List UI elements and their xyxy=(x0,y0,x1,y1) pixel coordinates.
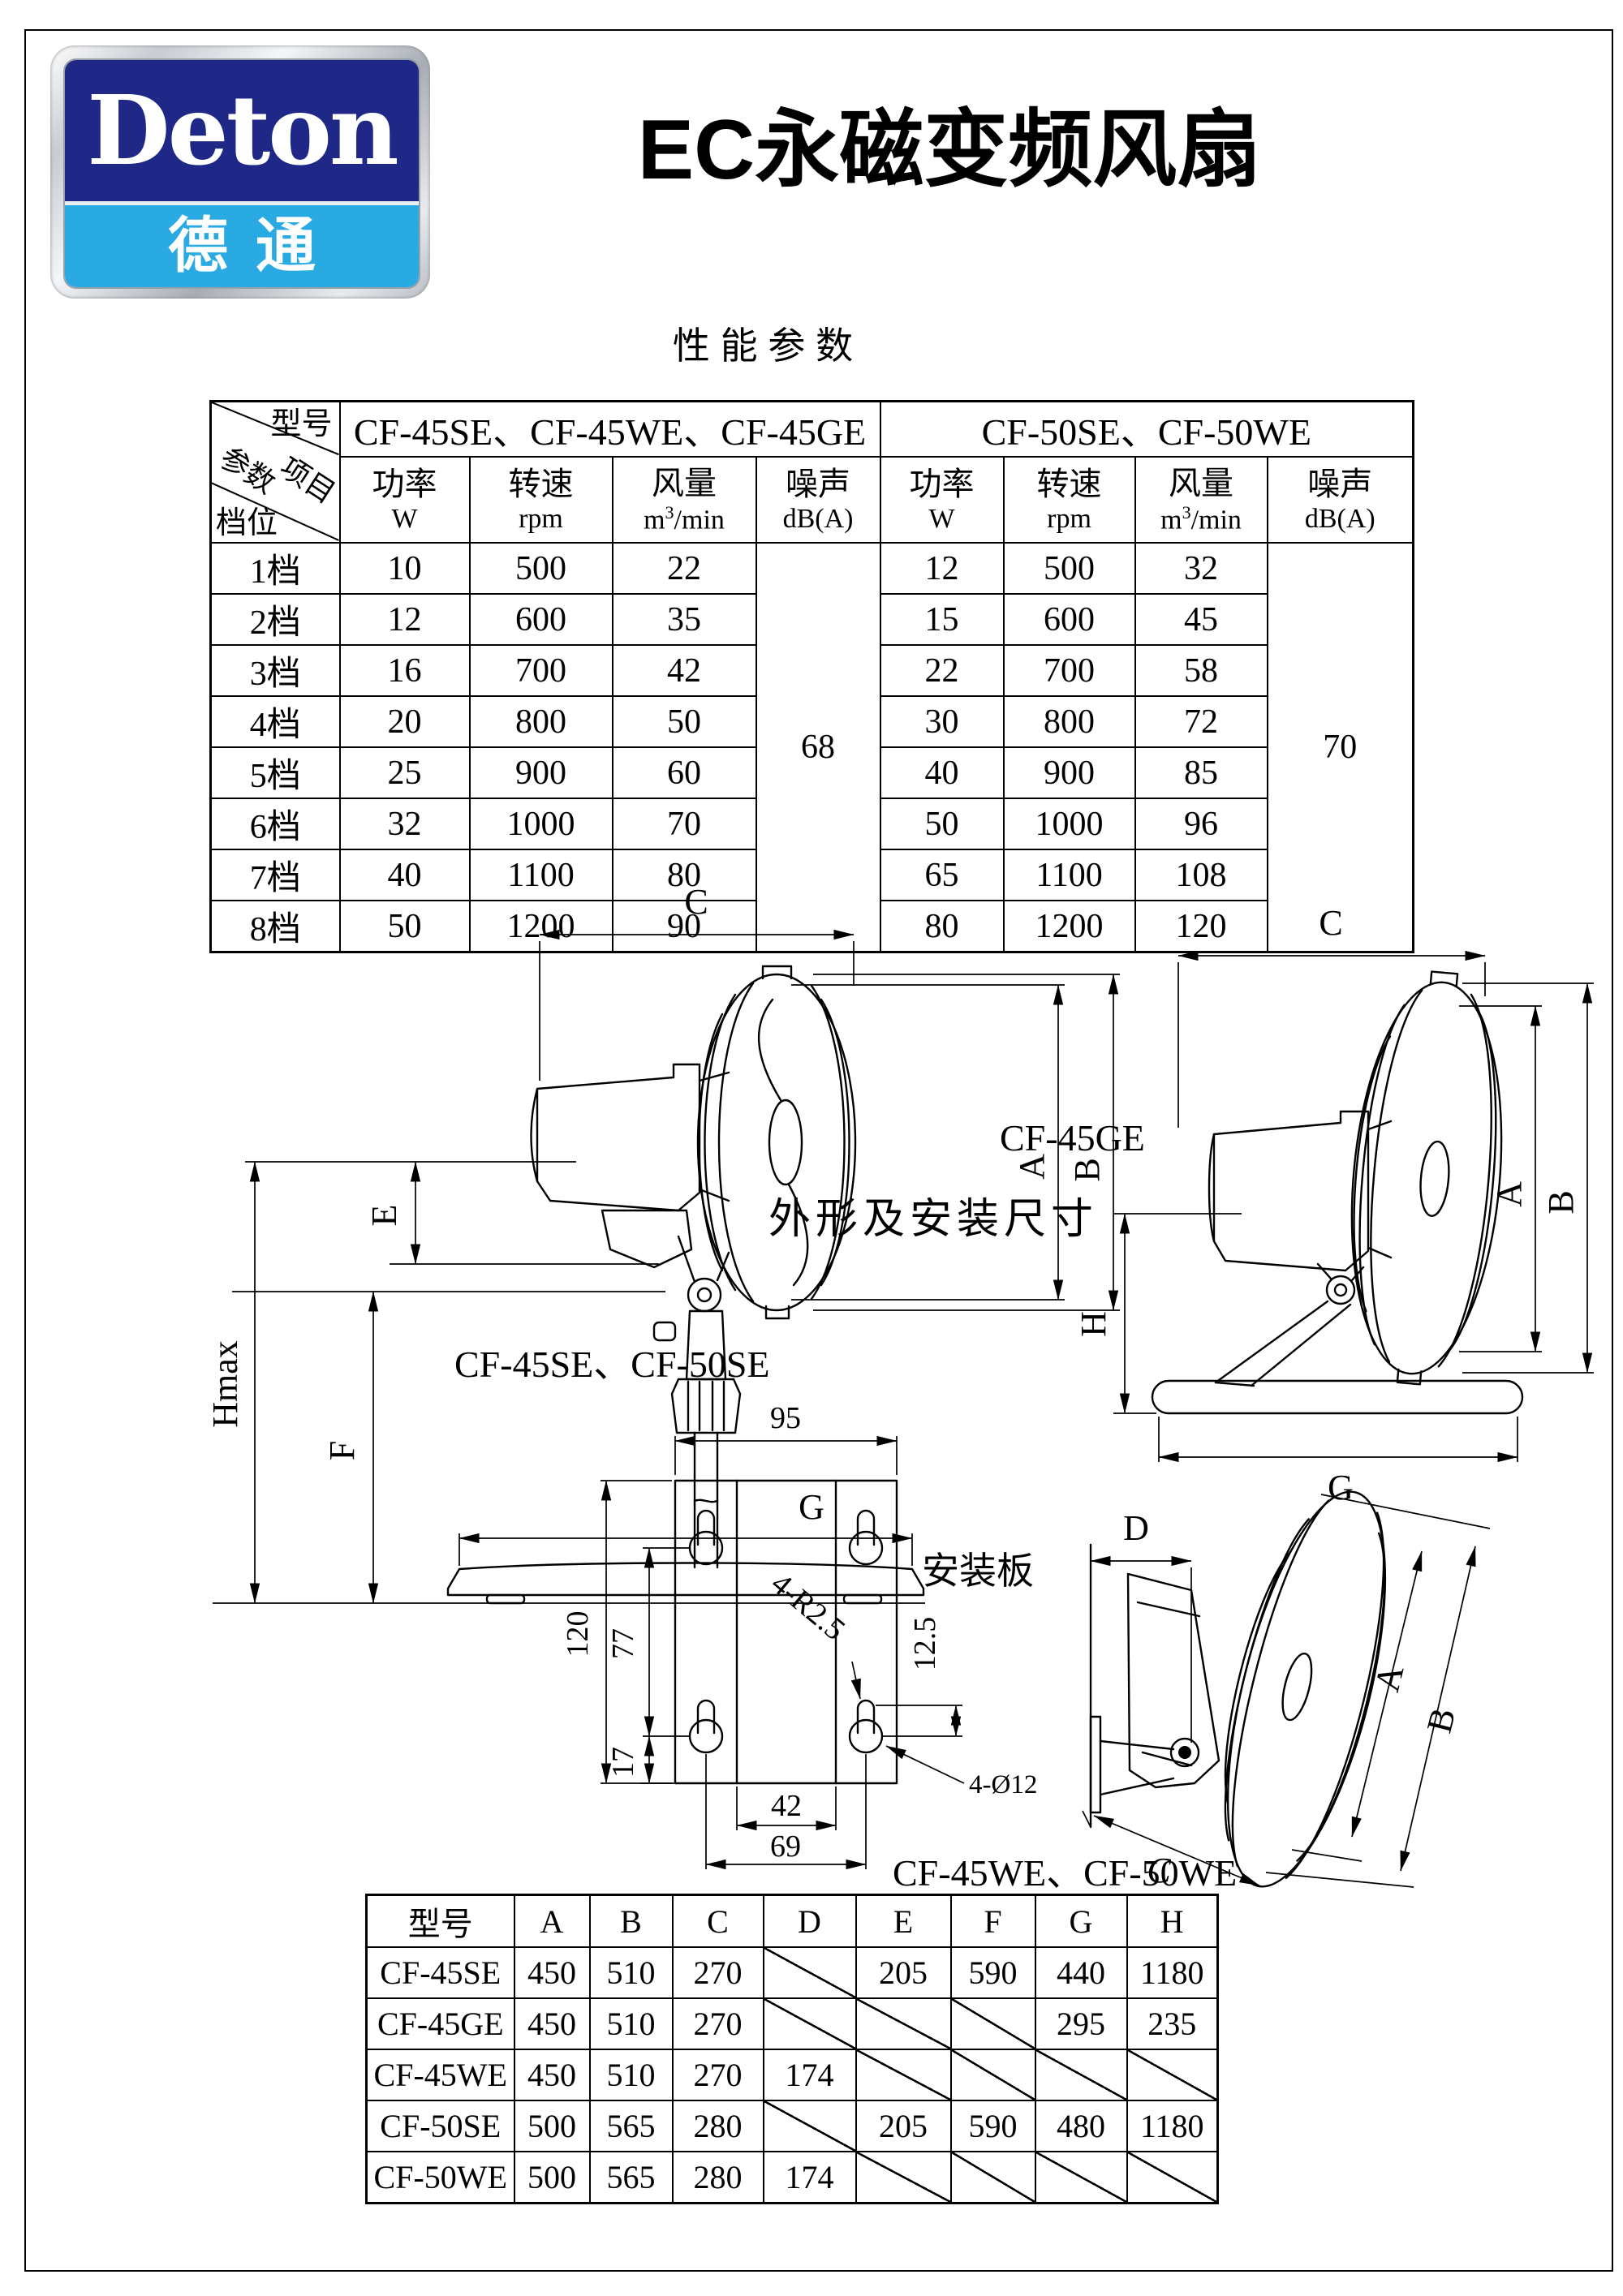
value-cell: 565 xyxy=(590,2100,673,2152)
value-cell: 480 xyxy=(1035,2100,1127,2152)
dim-label-c: C xyxy=(684,882,708,922)
empty-cell xyxy=(856,2049,951,2100)
dim-label-b: B xyxy=(1067,1158,1107,1181)
value-cell: 1000 xyxy=(1004,798,1135,849)
col-header-speed-45: 转速 rpm xyxy=(470,457,613,543)
empty-cell xyxy=(764,2100,856,2152)
deton-logo: Deton 德通 xyxy=(50,45,430,299)
page-title: EC永磁变频风扇 xyxy=(584,104,1315,196)
empty-cell xyxy=(764,1947,856,1998)
corner-label-model: 型号 xyxy=(270,409,332,440)
note-corner-radius: 4-R2.5 xyxy=(764,1567,851,1647)
empty-cell xyxy=(1127,2049,1218,2100)
value-cell: 500 xyxy=(1004,543,1135,594)
value-cell: 1180 xyxy=(1127,1947,1218,1998)
value-cell: 85 xyxy=(1135,747,1268,798)
table-row: CF-50SE 500 565 280 205 590 480 1180 xyxy=(367,2100,1218,2152)
value-cell: 45 xyxy=(1135,594,1268,645)
gear-cell: 6档 xyxy=(211,798,340,849)
value-cell: 900 xyxy=(1004,747,1135,798)
deton-logo-inner: Deton 德通 xyxy=(63,58,420,289)
value-cell: 450 xyxy=(514,1998,590,2049)
gear-cell: 3档 xyxy=(211,645,340,696)
mounting-plate-drawing: 95 120 77 17 42 69 12.5 4-R2. xyxy=(561,1401,1037,1869)
value-cell: 270 xyxy=(673,1998,764,2049)
value-cell: 450 xyxy=(514,1947,590,1998)
header-f: F xyxy=(951,1895,1035,1948)
value-cell: 42 xyxy=(613,645,756,696)
pedestal-caption: CF-45SE、CF-50SE xyxy=(454,1344,770,1385)
header-e: E xyxy=(856,1895,951,1948)
spec-sheet-page: Deton 德通 EC永磁变频风扇 性 能 参 数 型号 项目 参数 档位 xyxy=(0,0,1623,2296)
dim-label-42: 42 xyxy=(771,1789,802,1823)
value-cell: 510 xyxy=(590,2049,673,2100)
wall-bracket-icon xyxy=(1091,1545,1173,1827)
value-cell: 700 xyxy=(470,645,613,696)
value-cell: 800 xyxy=(470,696,613,747)
dim-label-95: 95 xyxy=(770,1401,801,1435)
value-cell: 600 xyxy=(1004,594,1135,645)
desk-fan-cage-icon xyxy=(1336,966,1518,1390)
value-cell: 500 xyxy=(514,2100,590,2152)
dim-label-b: B xyxy=(1419,1704,1464,1736)
dim-label-17: 17 xyxy=(606,1747,640,1778)
dim-label-d: D xyxy=(1123,1508,1149,1548)
empty-cell xyxy=(1127,2152,1218,2204)
value-cell: 280 xyxy=(673,2152,764,2204)
value-cell: 500 xyxy=(514,2152,590,2204)
mounting-plate-caption: 安装板 xyxy=(922,1550,1034,1592)
value-cell: 96 xyxy=(1135,798,1268,849)
empty-cell xyxy=(764,1998,856,2049)
empty-cell xyxy=(856,2152,951,2204)
model-cell: CF-50SE xyxy=(367,2100,514,2152)
value-cell: 22 xyxy=(613,543,756,594)
value-cell: 12 xyxy=(880,543,1004,594)
performance-table: 型号 项目 参数 档位 CF-45SE、CF-45WE、CF-45GE CF-5… xyxy=(209,400,1414,953)
value-cell: 12 xyxy=(340,594,470,645)
col-header-power-45: 功率 W xyxy=(340,457,470,543)
dim-label-e: E xyxy=(364,1205,404,1227)
value-cell: 25 xyxy=(340,747,470,798)
dim-label-hmax: Hmax xyxy=(205,1340,245,1428)
header-c: C xyxy=(673,1895,764,1948)
logo-latin-band: Deton xyxy=(65,60,419,201)
table-row: CF-45SE 450 510 270 205 590 440 1180 xyxy=(367,1947,1218,1998)
empty-cell xyxy=(951,1998,1035,2049)
col-header-power-50: 功率 W xyxy=(880,457,1004,543)
value-cell: 565 xyxy=(590,2152,673,2204)
logo-cjk-band: 德通 xyxy=(65,201,419,287)
value-cell: 270 xyxy=(673,1947,764,1998)
value-cell: 205 xyxy=(856,1947,951,1998)
model-group-50: CF-50SE、CF-50WE xyxy=(880,402,1414,458)
value-cell: 1000 xyxy=(470,798,613,849)
section-title-performance: 性 能 参 数 xyxy=(592,316,933,370)
desk-fan-dimensions: C A B H G xyxy=(1074,903,1594,1507)
model-cell: CF-45SE xyxy=(367,1947,514,1998)
table-row: CF-45WE 450 510 270 174 xyxy=(367,2049,1218,2100)
value-cell: 500 xyxy=(470,543,613,594)
value-cell: 600 xyxy=(470,594,613,645)
corner-label-gear: 档位 xyxy=(216,508,278,539)
value-cell: 15 xyxy=(880,594,1004,645)
value-cell: 60 xyxy=(613,747,756,798)
value-cell: 510 xyxy=(590,1947,673,1998)
value-cell: 50 xyxy=(880,798,1004,849)
header-a: A xyxy=(514,1895,590,1948)
empty-cell xyxy=(951,2152,1035,2204)
value-cell: 35 xyxy=(613,594,756,645)
section-title-dimensions: 外形及安装尺寸 xyxy=(768,1197,1098,1243)
value-cell: 700 xyxy=(1004,645,1135,696)
dim-label-a: A xyxy=(1367,1661,1411,1696)
model-cell: CF-45WE xyxy=(367,2049,514,2100)
dim-label-a: A xyxy=(1489,1181,1529,1207)
logo-latin-text: Deton xyxy=(87,83,396,178)
note-hole-diameter: 4-Ø12 xyxy=(969,1770,1037,1799)
value-cell: 900 xyxy=(470,747,613,798)
dim-label-g: G xyxy=(799,1487,824,1527)
dim-label-77: 77 xyxy=(606,1628,640,1659)
header-h: H xyxy=(1127,1895,1218,1948)
header-d: D xyxy=(764,1895,856,1948)
value-cell: 40 xyxy=(880,747,1004,798)
table-row: CF-45GE 450 510 270 295 235 xyxy=(367,1998,1218,2049)
value-cell: 10 xyxy=(340,543,470,594)
value-cell: 174 xyxy=(764,2049,856,2100)
corner-header-cell: 型号 项目 参数 档位 xyxy=(211,402,340,544)
value-cell: 20 xyxy=(340,696,470,747)
mounting-plate-dimensions: 95 120 77 17 42 69 12.5 4-R2. xyxy=(561,1401,1037,1869)
value-cell: 235 xyxy=(1127,1998,1218,2049)
empty-cell xyxy=(1035,2049,1127,2100)
value-cell: 280 xyxy=(673,2100,764,2152)
dim-label-c: C xyxy=(1319,903,1342,943)
empty-cell xyxy=(1035,2152,1127,2204)
col-header-speed-50: 转速 rpm xyxy=(1004,457,1135,543)
value-cell: 16 xyxy=(340,645,470,696)
value-cell: 58 xyxy=(1135,645,1268,696)
value-cell: 510 xyxy=(590,1998,673,2049)
gear-cell: 5档 xyxy=(211,747,340,798)
value-cell: 800 xyxy=(1004,696,1135,747)
model-cell: CF-45GE xyxy=(367,1998,514,2049)
header-model: 型号 xyxy=(367,1895,514,1948)
header-b: B xyxy=(590,1895,673,1948)
wall-fan-caption: CF-45WE、CF-50WE xyxy=(893,1852,1237,1890)
empty-cell xyxy=(856,1998,951,2049)
value-cell: 70 xyxy=(613,798,756,849)
value-cell: 174 xyxy=(764,2152,856,2204)
gear-cell: 1档 xyxy=(211,543,340,594)
dimension-table: 型号 A B C D E F G H CF-45SE 450 510 270 2… xyxy=(365,1894,1219,2204)
value-cell: 72 xyxy=(1135,696,1268,747)
dim-label-f: F xyxy=(322,1441,362,1460)
desk-fan-motor-icon xyxy=(1152,1111,1522,1413)
value-cell: 205 xyxy=(856,2100,951,2152)
col-header-airflow-45: 风量 m3/min xyxy=(613,457,756,543)
table-header-row: 型号 A B C D E F G H xyxy=(367,1895,1218,1948)
gear-cell: 2档 xyxy=(211,594,340,645)
value-cell: 22 xyxy=(880,645,1004,696)
wall-fan-drawing: D A B C CF-45WE、CF-50WE xyxy=(893,1476,1490,1890)
value-cell: 590 xyxy=(951,1947,1035,1998)
table-row: CF-50WE 500 565 280 174 xyxy=(367,2152,1218,2204)
model-cell: CF-50WE xyxy=(367,2152,514,2204)
table-row: 1档 10 500 22 68 12 500 32 70 xyxy=(211,543,1414,594)
desk-fan-caption: CF-45GE xyxy=(1000,1117,1145,1159)
value-cell: 32 xyxy=(340,798,470,849)
value-cell: 295 xyxy=(1035,1998,1127,2049)
dim-label-120: 120 xyxy=(561,1611,595,1658)
value-cell: 590 xyxy=(951,2100,1035,2152)
value-cell: 32 xyxy=(1135,543,1268,594)
fan-motor-icon xyxy=(532,1064,730,1340)
dim-label-12-5: 12.5 xyxy=(908,1617,942,1671)
value-cell: 270 xyxy=(673,2049,764,2100)
col-header-noise-45: 噪声 dB(A) xyxy=(756,457,880,543)
technical-drawings: 外形及安装尺寸 xyxy=(0,876,1623,1890)
value-cell: 1180 xyxy=(1127,2100,1218,2152)
value-cell: 30 xyxy=(880,696,1004,747)
wall-fan-motor-icon xyxy=(1128,1574,1219,1787)
value-cell: 50 xyxy=(613,696,756,747)
dim-label-g: G xyxy=(1328,1468,1354,1507)
col-header-noise-50: 噪声 dB(A) xyxy=(1268,457,1414,543)
dim-label-b: B xyxy=(1541,1190,1581,1214)
logo-cjk-text: 德通 xyxy=(140,216,343,276)
gear-cell: 4档 xyxy=(211,696,340,747)
model-group-45: CF-45SE、CF-45WE、CF-45GE xyxy=(340,402,880,458)
dim-label-69: 69 xyxy=(770,1829,801,1864)
dim-label-h: H xyxy=(1074,1311,1113,1337)
empty-cell xyxy=(951,2049,1035,2100)
value-cell: 450 xyxy=(514,2049,590,2100)
mounting-plate-icon xyxy=(675,1481,897,1783)
header-g: G xyxy=(1035,1895,1127,1948)
value-cell: 440 xyxy=(1035,1947,1127,1998)
col-header-airflow-50: 风量 m3/min xyxy=(1135,457,1268,543)
fan-cage-icon xyxy=(698,966,855,1318)
